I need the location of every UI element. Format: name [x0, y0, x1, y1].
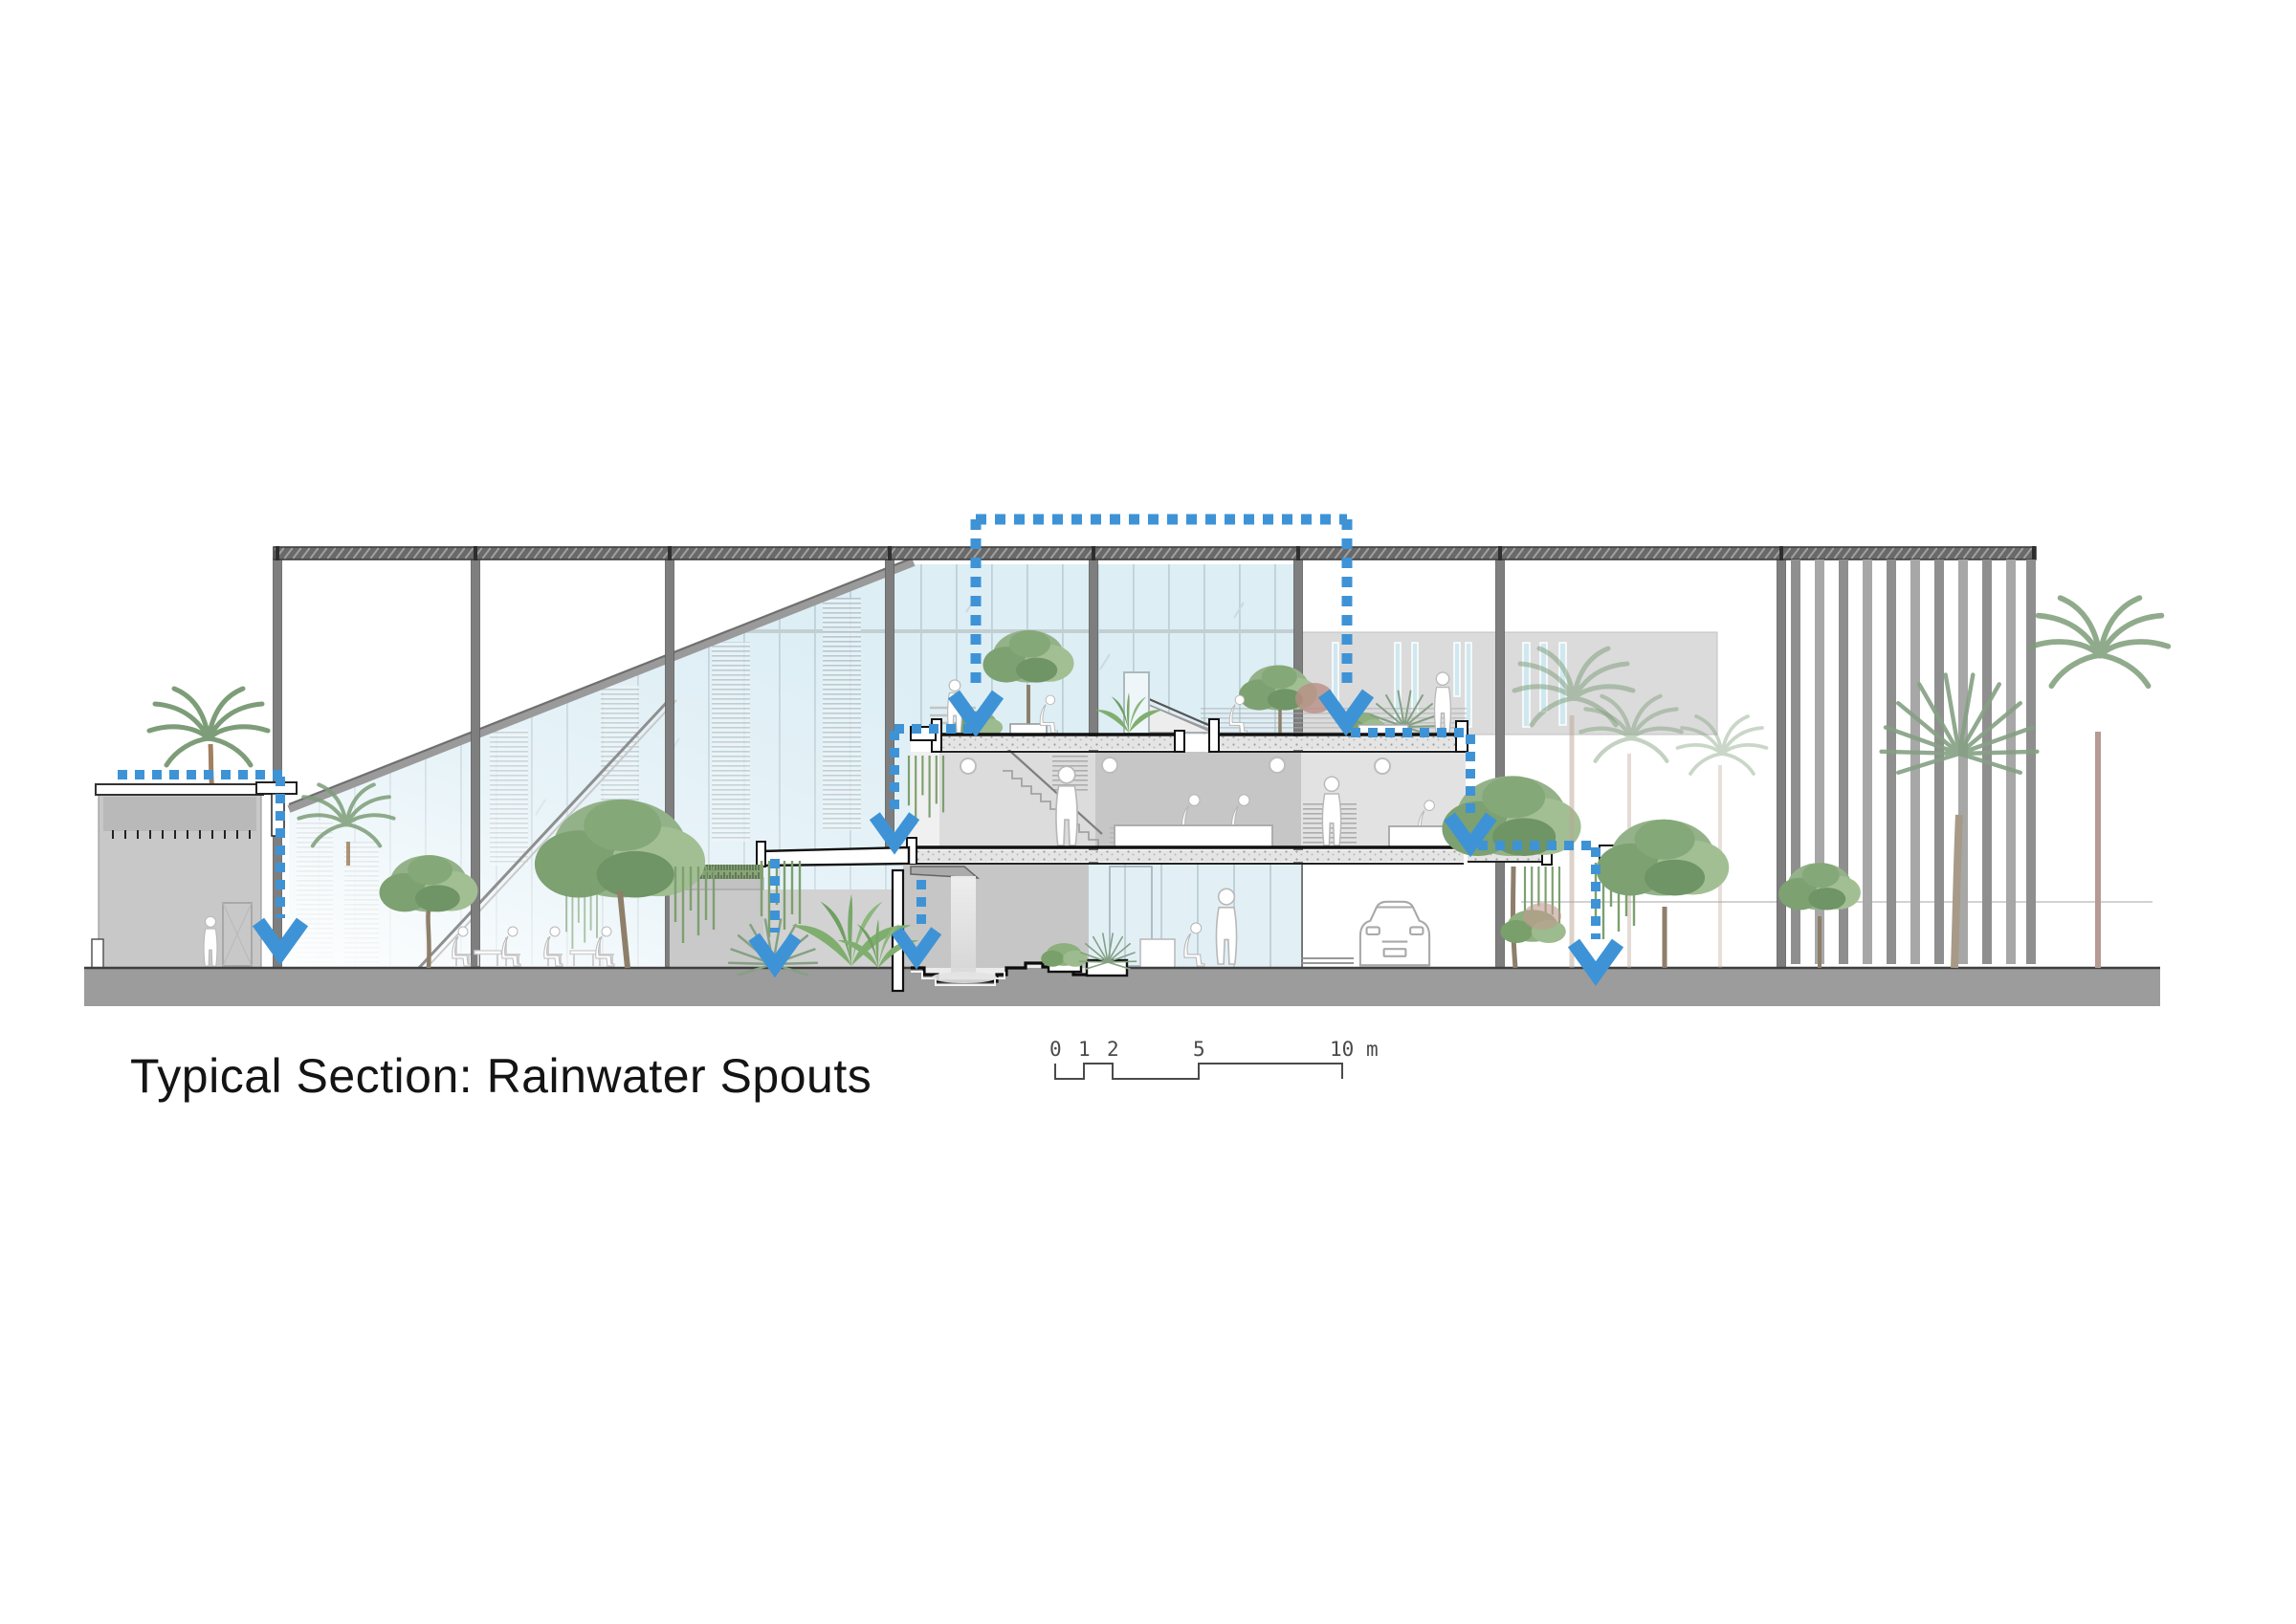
tree — [1778, 863, 1861, 910]
section-drawing-page: 0 1 2 5 10 m Typical Section: Rainwater … — [0, 0, 2296, 1624]
annex-roof-band — [103, 797, 256, 831]
column — [1496, 559, 1505, 968]
first-floor-slab — [913, 850, 1464, 862]
annex-pilaster — [92, 939, 103, 968]
annex-parapet — [96, 784, 263, 795]
column — [1777, 559, 1786, 968]
scale-bar: 0 1 2 5 10 m — [1049, 1038, 1379, 1079]
roof-beam — [274, 547, 2036, 560]
plinth-box — [1140, 939, 1175, 968]
section-drawing: 0 1 2 5 10 m — [0, 0, 2296, 1624]
reception-desk — [1115, 825, 1272, 847]
tree — [1597, 820, 1730, 896]
terrace-slab — [938, 736, 1180, 750]
canopy-slab — [761, 847, 909, 866]
slab-upturn — [1209, 719, 1219, 752]
palm-trunk — [1954, 815, 1959, 968]
scale-label-10: 10 — [1330, 1038, 1354, 1061]
scale-bar-line — [1055, 1064, 1342, 1079]
scale-unit: m — [1366, 1038, 1379, 1061]
waterfall — [951, 876, 976, 976]
scale-label-0: 0 — [1049, 1038, 1062, 1061]
scale-label-2: 2 — [1107, 1038, 1119, 1061]
column — [472, 559, 480, 968]
waterfall-splash — [932, 972, 997, 983]
royal-palm — [2032, 598, 2169, 686]
scale-label-5: 5 — [1193, 1038, 1205, 1061]
column — [886, 559, 894, 863]
scale-label-1: 1 — [1078, 1038, 1091, 1061]
flowering-shrub — [1523, 903, 1561, 930]
terrace-slab — [1215, 736, 1464, 750]
car-outline — [1360, 902, 1429, 966]
slab-edge — [1175, 731, 1184, 752]
entry-steps — [1301, 958, 1354, 968]
second-floor-interior — [911, 746, 1466, 847]
drawing-title: Typical Section: Rainwater Spouts — [130, 1048, 872, 1104]
